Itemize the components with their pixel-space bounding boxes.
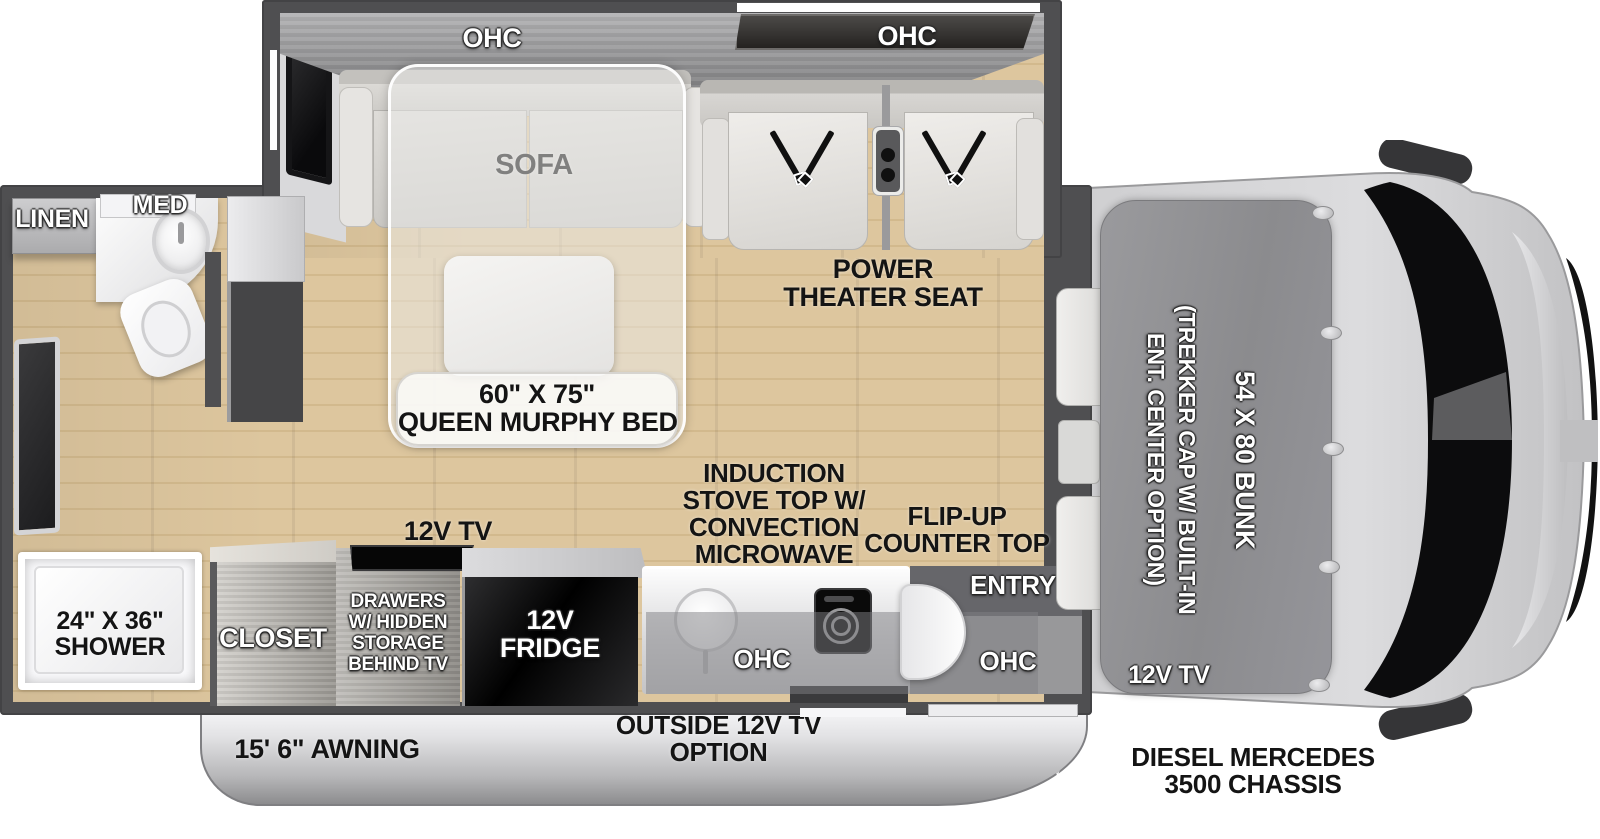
drawers-label: DRAWERS W/ HIDDEN STORAGE BEHIND TV [336,592,460,676]
bunk-rivet-icon [1312,206,1334,220]
stove-control-icon [824,596,854,602]
bunk-rivet-icon [1318,560,1340,574]
cup-holder-icon [881,148,895,162]
cup-holder-icon [881,168,895,182]
cab-tv-label: 12V TV [1104,662,1234,688]
linen-label: LINEN [2,206,102,232]
bath-partition-wall [205,252,221,407]
slideout-trim-top [737,3,1040,12]
chassis-label: DIESEL MERCEDES 3500 CHASSIS [1128,744,1378,799]
slideout-trim-left [270,50,277,150]
sofa-armrest-left [339,87,373,227]
bunk-rivet-icon [1308,678,1330,692]
flip-up-label: FLIP-UP COUNTER TOP [847,503,1067,558]
murphy-bed-label: 60" X 75" QUEEN MURPHY BED [398,380,676,437]
rv-floorplan: 15' 6" AWNING OUTSIDE 12V TV OPTION DIES… [0,0,1600,839]
kitchen-tv-label: 12V TV [398,517,498,545]
fridge-label: 12V FRIDGE [462,606,638,663]
cockpit-console [1058,420,1100,484]
body-trim-bar [800,708,906,717]
trekker-cap-label: (TREKKER CAP W/ BUILT-IN ENT. CENTER OPT… [1118,225,1202,695]
outside-tv-option-label: OUTSIDE 12V TV OPTION [596,712,841,767]
wardrobe-panel [227,282,303,422]
bunk-size-label: 54 X 80 BUNK [1216,240,1260,680]
theater-armrest-left [702,118,730,240]
bunk-rivet-icon [1322,442,1344,456]
shower-label: 24" X 36" SHOWER [28,608,192,661]
bunk-rivet-icon [1320,326,1342,340]
murphy-bed-pillow [444,256,614,376]
ohc-right-label: OHC [862,22,952,50]
theater-armrest-right [1016,118,1044,240]
bath-faucet-icon [178,222,184,244]
closet-label: CLOSET [213,624,333,652]
rear-window-icon [14,336,60,535]
med-label: MED [120,192,200,218]
ohc-left-label: OHC [447,24,537,52]
entry-label: ENTRY [958,572,1068,599]
theater-seat-label: POWER THEATER SEAT [773,255,993,312]
ohc-counter-label: OHC [712,646,812,673]
fridge-top [462,548,648,578]
hidden-tv-icon [350,545,474,571]
awning-label: 15' 6" AWNING [212,735,442,763]
entry-step [928,704,1078,717]
wardrobe-cabinet [227,196,305,282]
ohc-entry-label: OHC [958,648,1058,675]
